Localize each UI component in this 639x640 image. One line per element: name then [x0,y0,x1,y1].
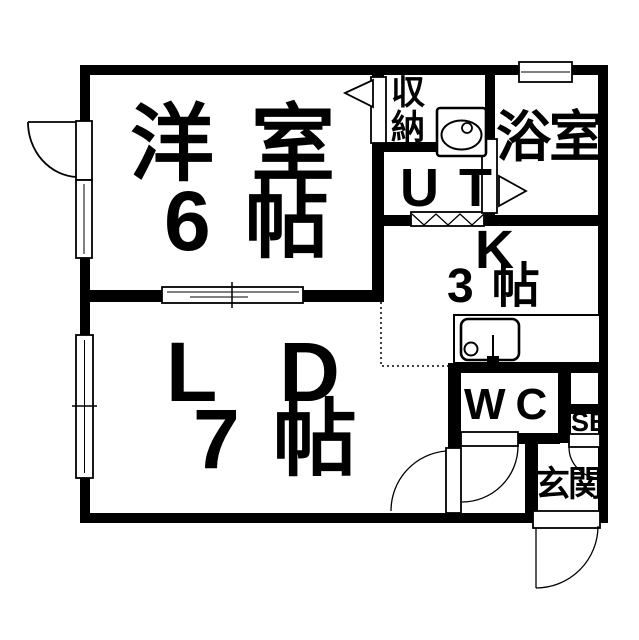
wall-wc-bottom-right [517,433,560,444]
wc-door-arc [462,446,518,502]
washbasin-bowl [442,121,482,150]
label-kitchen-size: 3帖 [447,263,558,311]
entrance-door-leaf [533,511,600,528]
ld-hall-door-arc [391,451,446,511]
wc-door-leaf [461,432,518,446]
label-yoshitsu-size: 6帖 [164,179,363,263]
wall-bottom [80,513,535,523]
floor-plan: 洋室 6帖 LD 7帖 収納 UT 浴室 K 3帖 WC SB 玄関 [0,0,639,640]
kitchen-counter-unit [454,315,600,363]
kitchen-faucet-base [487,356,499,362]
floor-plan-geometry [0,0,639,640]
kitchen-burner-icon [465,343,478,356]
label-utility: UT [400,161,512,215]
label-wc: WC [464,383,557,427]
label-entrance: 玄関 [535,467,601,502]
wall-wc-top [448,363,600,373]
label-shoe-box: SB [571,409,609,436]
washbasin-faucet-knob [462,123,472,133]
label-closet: 収納 [389,76,427,146]
washbasin [437,108,486,156]
label-living-dining-size: 7帖 [193,397,390,481]
casement-window-swing-arc [28,122,77,177]
ld-hall-door-leaf [446,448,461,513]
wall-wc-bottom-left [448,433,462,444]
entrance-door-arc [536,526,598,588]
label-bathroom: 浴室 [496,110,602,165]
yoshitsu-window-upper [76,121,92,180]
